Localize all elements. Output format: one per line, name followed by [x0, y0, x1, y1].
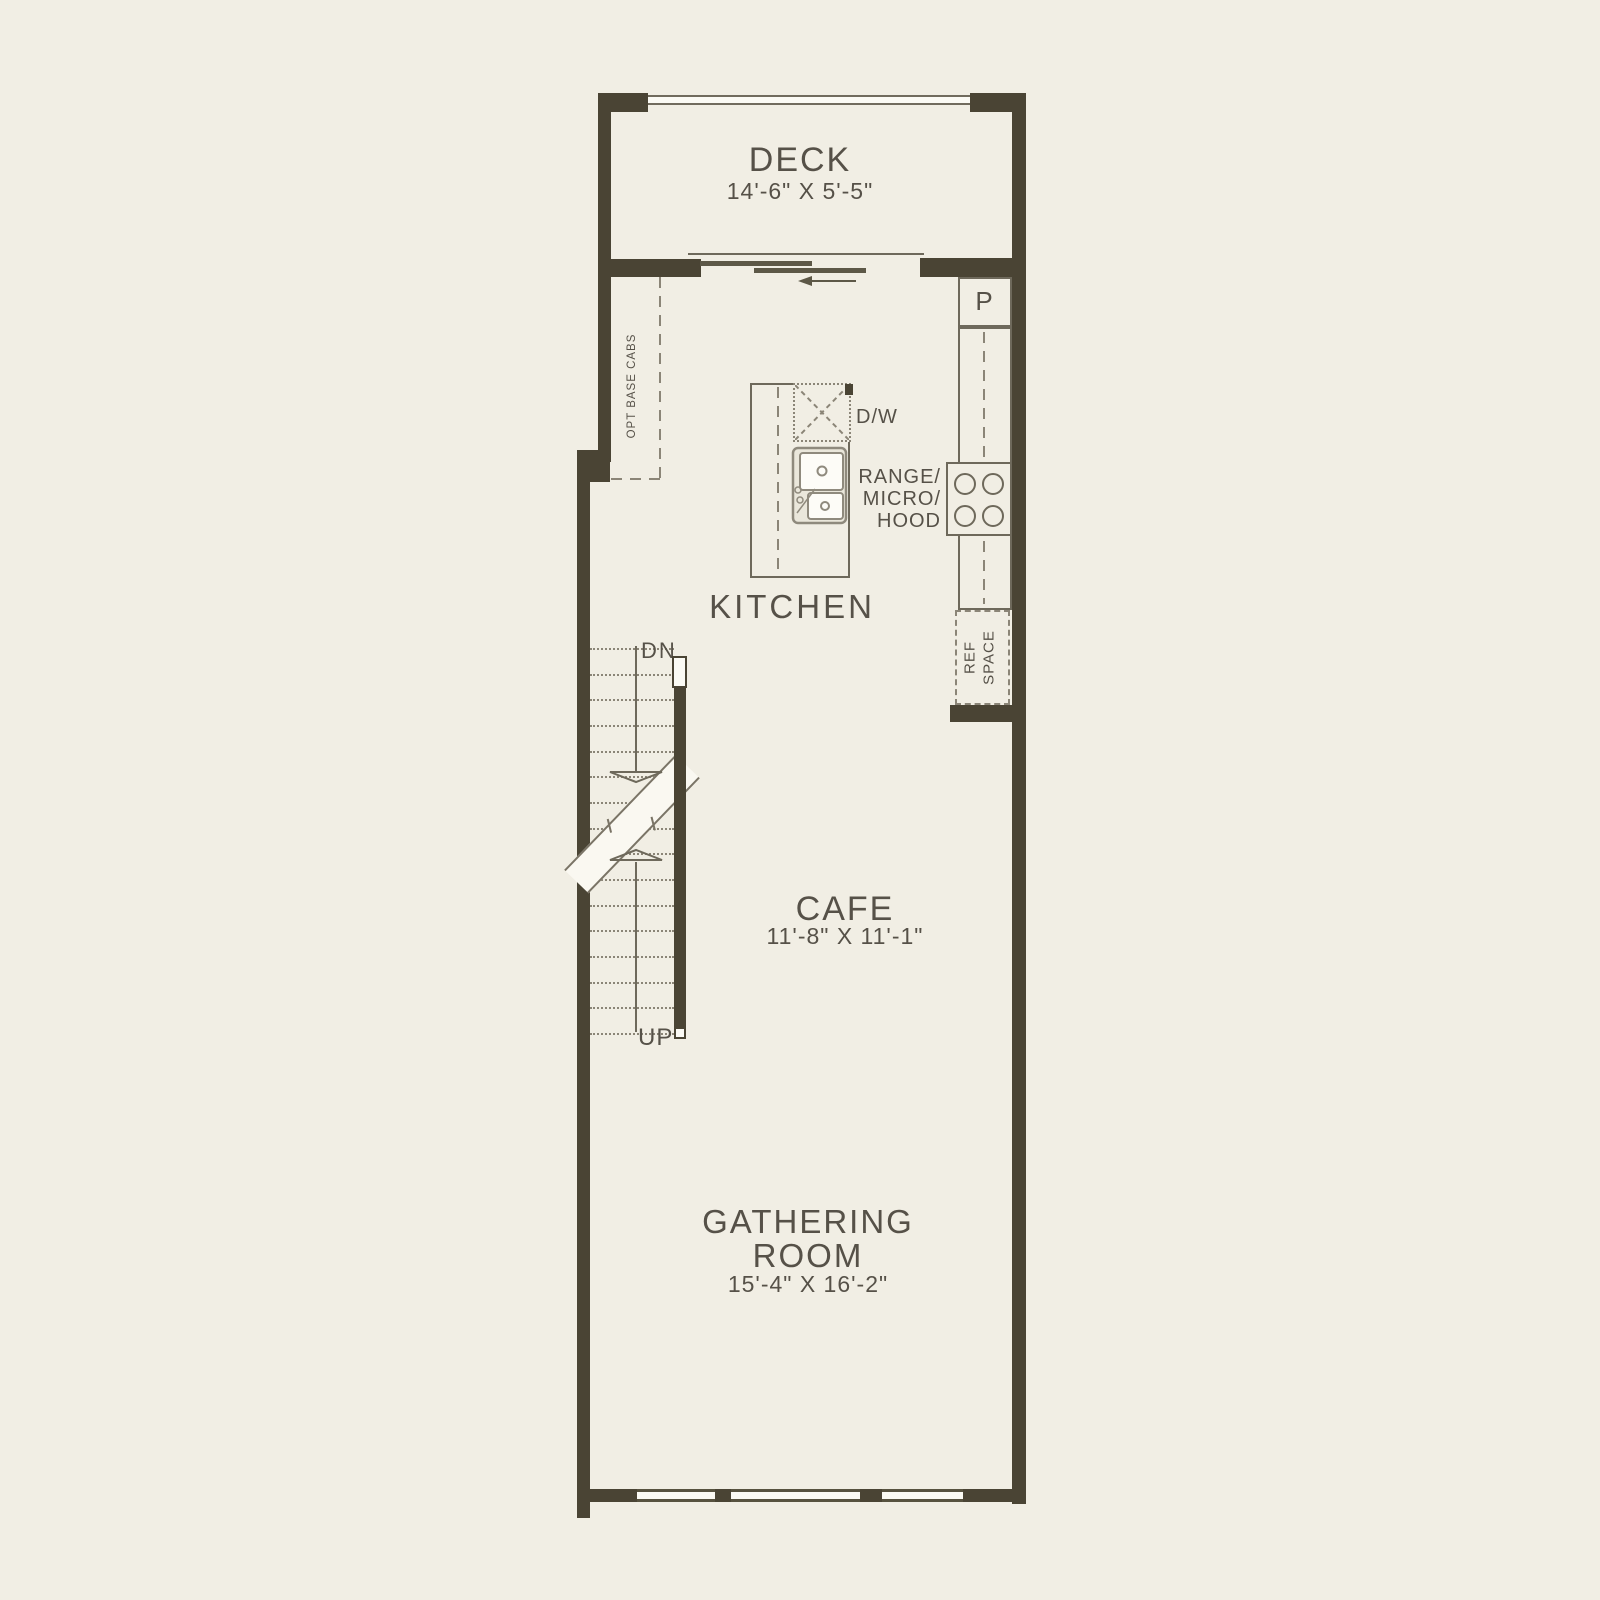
stair-up-arrowhead-icon: [608, 848, 664, 862]
range-label-line1: RANGE/: [835, 466, 941, 488]
window-3: [882, 1489, 963, 1502]
stair-tread: [590, 699, 674, 701]
slider-arrow-icon: [796, 274, 858, 288]
range-label: RANGE/ MICRO/ HOOD: [835, 466, 941, 532]
wall-deck-divider-left: [598, 259, 701, 277]
pantry-label: P: [958, 288, 1012, 315]
deck-railing: [648, 95, 970, 105]
gathering-room-label-line1: GATHERING: [668, 1205, 948, 1240]
opt-base-cabs-label: OPT BASE CABS: [626, 306, 642, 466]
ref-space-label: REF SPACE: [961, 613, 1006, 703]
deck-label: DECK: [660, 143, 940, 179]
stair-rail-cap-bottom: [674, 1027, 686, 1039]
deck-dims: 14'-6" X 5'-5": [660, 179, 940, 203]
stair-tread: [590, 879, 674, 881]
dishwasher-x-icon: [795, 385, 849, 440]
ref-label-line1: REF: [961, 613, 980, 703]
break-tick-top: [607, 819, 612, 833]
stair-tread: [590, 1007, 674, 1009]
stair-up-arrow-line: [635, 862, 637, 1032]
opt-base-cabs-dashline-bottom: [611, 478, 661, 480]
dishwasher-label: D/W: [856, 406, 898, 429]
wall-left-upper: [598, 93, 611, 462]
wall-left-lower: [577, 462, 590, 1518]
floor-plan-canvas: P RANGE/ MICRO/ HOOD REF SPACE OPT BASE …: [0, 0, 1600, 1600]
opt-base-cabs-dashline: [659, 277, 661, 480]
stair-rail-cap-top: [672, 656, 687, 688]
ref-label-line2: SPACE: [980, 613, 999, 703]
stair-dn-arrow-line: [635, 646, 637, 772]
wall-deck-divider-right: [920, 258, 1012, 277]
gathering-room-dims: 15'-4" X 16'-2": [668, 1272, 948, 1296]
wall-bottom-post1: [715, 1489, 731, 1502]
stair-tread: [590, 905, 674, 907]
stair-tread: [590, 982, 674, 984]
sink-icon: [791, 446, 849, 526]
stair-up-label: UP: [638, 1024, 673, 1052]
stair-tread: [590, 751, 674, 753]
slider-track: [688, 253, 924, 255]
stair-tread: [590, 674, 674, 676]
slider-panel-1: [700, 261, 812, 266]
gathering-room-label-line2: ROOM: [668, 1239, 948, 1274]
cafe-dims: 11'-8" X 11'-1": [705, 924, 985, 948]
range-label-line2: MICRO/: [835, 488, 941, 510]
range-label-line3: HOOD: [835, 510, 941, 532]
stair-rail-wall: [674, 686, 686, 1035]
wall-bottom-post2: [860, 1489, 882, 1502]
stair-tread: [590, 930, 674, 932]
wall-right: [1012, 93, 1026, 1504]
window-1: [637, 1489, 715, 1502]
dishwasher-corner-tick: [845, 384, 853, 395]
range-burners-icon: [948, 464, 1010, 534]
window-2: [731, 1489, 860, 1502]
slider-panel-2: [754, 268, 866, 273]
wall-bottom-right: [963, 1489, 1026, 1502]
stair-tread: [590, 956, 674, 958]
island-dashline: [777, 387, 779, 574]
wall-bottom-left: [577, 1489, 637, 1502]
wall-below-ref: [950, 705, 1012, 722]
kitchen-label: KITCHEN: [672, 590, 912, 625]
stair-dn-arrowhead-icon: [608, 770, 664, 784]
stair-tread: [590, 725, 674, 727]
